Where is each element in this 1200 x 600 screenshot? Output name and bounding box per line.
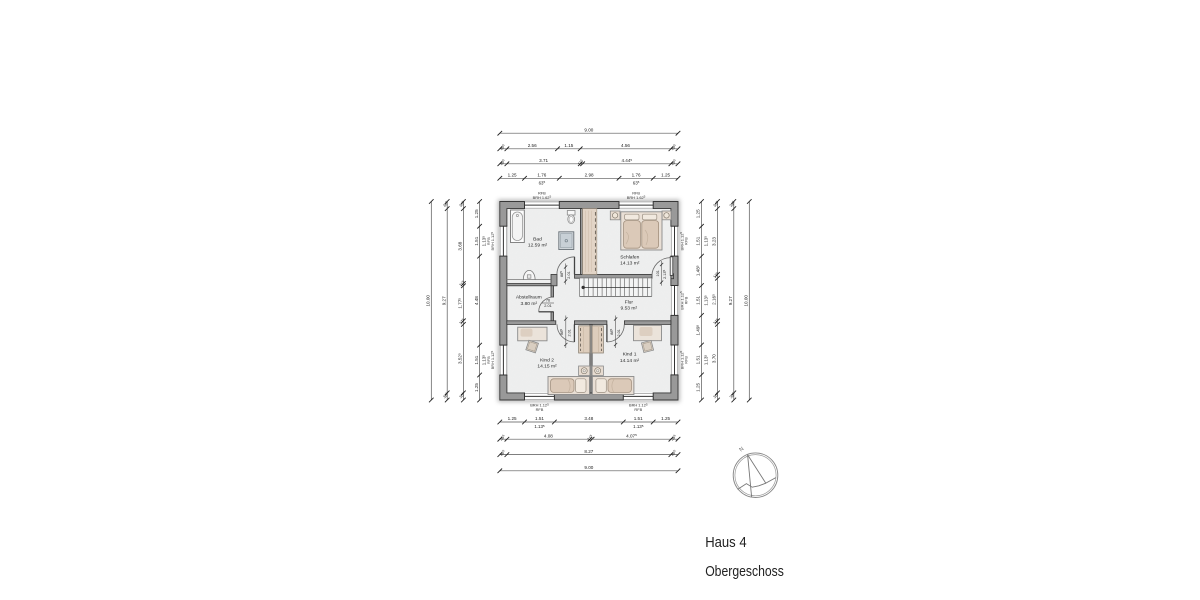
svg-text:2.01: 2.01 — [567, 271, 571, 278]
svg-text:1.25: 1.25 — [508, 173, 517, 178]
svg-text:Haus 4: Haus 4 — [705, 535, 746, 551]
svg-text:Kind 1: Kind 1 — [623, 352, 637, 358]
svg-text:BRH 1.625: BRH 1.625 — [627, 195, 646, 200]
svg-text:14.15 m²: 14.15 m² — [537, 364, 557, 370]
svg-text:3.68: 3.68 — [458, 241, 463, 250]
svg-text:4.48: 4.48 — [474, 296, 479, 305]
svg-text:3.80 m²: 3.80 m² — [521, 301, 538, 307]
svg-text:Abstellraum: Abstellraum — [516, 295, 542, 301]
svg-text:1.25: 1.25 — [508, 416, 517, 421]
svg-text:76: 76 — [546, 299, 550, 303]
svg-text:1.25: 1.25 — [661, 416, 670, 421]
svg-text:1.51: 1.51 — [474, 355, 479, 364]
svg-text:8.27: 8.27 — [584, 449, 593, 454]
svg-text:9.00: 9.00 — [584, 465, 593, 470]
svg-text:BRH 1.625: BRH 1.625 — [533, 195, 552, 200]
svg-text:BRH 1.125: BRH 1.125 — [490, 351, 495, 370]
svg-text:1.51: 1.51 — [696, 355, 701, 364]
svg-text:Obergeschoss: Obergeschoss — [705, 564, 784, 580]
svg-text:1.76: 1.76 — [632, 173, 641, 178]
svg-text:10.00: 10.00 — [426, 295, 431, 307]
svg-text:3.48: 3.48 — [584, 416, 593, 421]
svg-text:1.51: 1.51 — [634, 416, 643, 421]
svg-text:101: 101 — [656, 270, 660, 276]
svg-text:RFB: RFB — [684, 237, 689, 245]
svg-text:12.59 m²: 12.59 m² — [528, 243, 548, 249]
svg-text:2.01: 2.01 — [544, 304, 551, 308]
svg-text:1.76: 1.76 — [537, 173, 546, 178]
svg-text:1.25: 1.25 — [696, 382, 701, 391]
svg-text:2.56: 2.56 — [528, 143, 537, 148]
svg-text:14.13 m²: 14.13 m² — [620, 261, 640, 267]
svg-text:3.70: 3.70 — [712, 354, 717, 363]
svg-text:1.25: 1.25 — [696, 209, 701, 218]
svg-text:9.27: 9.27 — [441, 296, 446, 305]
svg-text:RFB: RFB — [684, 356, 689, 364]
svg-text:RFB: RFB — [536, 407, 544, 412]
svg-text:9.00: 9.00 — [584, 127, 593, 132]
svg-text:RFB: RFB — [684, 296, 689, 304]
svg-text:4.08: 4.08 — [544, 433, 553, 438]
svg-text:4.56: 4.56 — [621, 143, 630, 148]
svg-text:BRH 1.125: BRH 1.125 — [490, 232, 495, 251]
svg-text:2.98: 2.98 — [585, 173, 594, 178]
svg-text:RFB: RFB — [634, 407, 642, 412]
svg-text:2.01: 2.01 — [617, 329, 621, 336]
svg-text:Schlafen: Schlafen — [620, 255, 639, 261]
svg-text:1.51: 1.51 — [696, 295, 701, 304]
svg-text:9.53 m²: 9.53 m² — [621, 306, 638, 312]
svg-text:3.71: 3.71 — [539, 158, 548, 163]
svg-text:1.25: 1.25 — [474, 383, 479, 392]
svg-text:Kind 2: Kind 2 — [540, 357, 554, 363]
svg-text:10.00: 10.00 — [744, 295, 749, 307]
svg-text:1.15: 1.15 — [564, 143, 573, 148]
svg-text:14.14 m²: 14.14 m² — [620, 358, 640, 364]
svg-text:1.51: 1.51 — [696, 236, 701, 245]
svg-text:1.51: 1.51 — [474, 236, 479, 245]
svg-text:Flur: Flur — [625, 300, 634, 306]
svg-text:1.25: 1.25 — [474, 209, 479, 218]
svg-text:9.27: 9.27 — [728, 296, 733, 305]
svg-text:1.51: 1.51 — [535, 416, 544, 421]
svg-text:3.23: 3.23 — [712, 237, 717, 246]
svg-text:2.01: 2.01 — [567, 329, 571, 336]
svg-text:Bad: Bad — [533, 237, 542, 243]
svg-text:1.25: 1.25 — [661, 173, 670, 178]
